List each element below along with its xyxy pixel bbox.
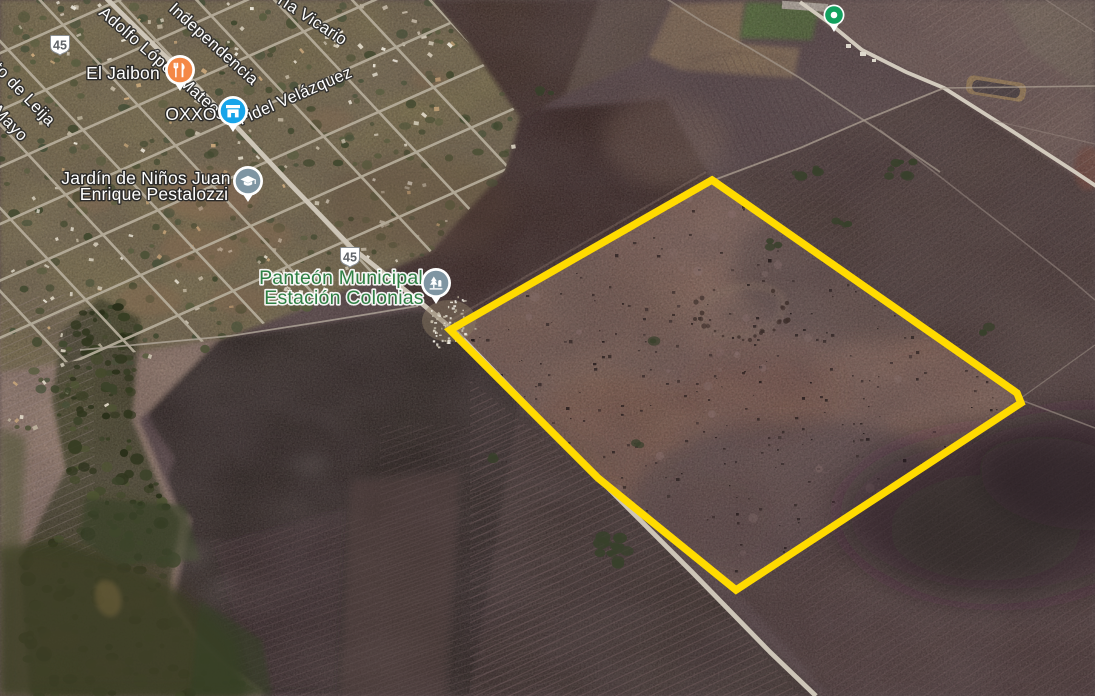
svg-text:OXXO: OXXO <box>165 104 216 124</box>
svg-text:45: 45 <box>343 251 357 265</box>
svg-text:Estación Colonias: Estación Colonias <box>264 287 424 309</box>
svg-text:Enrique Pestalozzi: Enrique Pestalozzi <box>80 184 229 204</box>
svg-text:El Jaibon: El Jaibon <box>86 63 160 83</box>
svg-text:Panteón Municipal: Panteón Municipal <box>259 267 423 289</box>
svg-text:45: 45 <box>53 39 67 53</box>
